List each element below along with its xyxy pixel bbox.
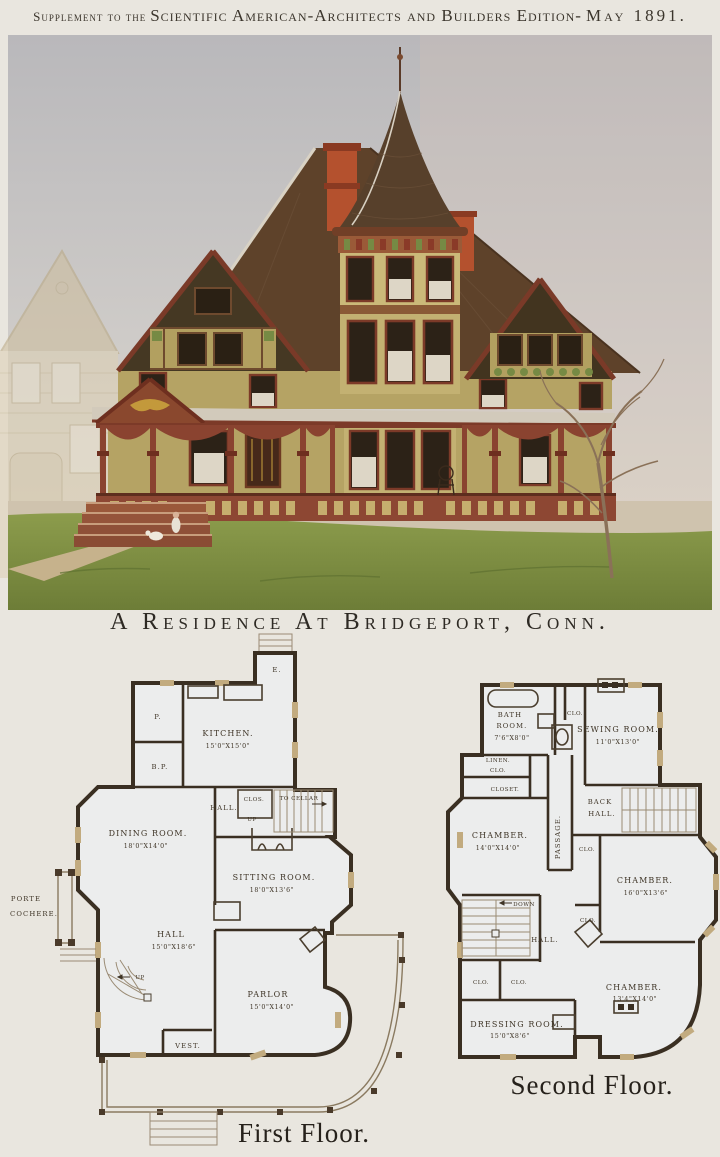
label-dining-dims: 18'0"X14'0" bbox=[124, 843, 168, 850]
label-bath-1: BATH bbox=[498, 711, 522, 719]
label-hall: HALL bbox=[157, 930, 185, 939]
scanned-plate-page: { "plate": { "header": { "prefix": "Supp… bbox=[0, 0, 720, 1157]
label-clo-c: CLO. bbox=[473, 980, 489, 986]
label-linen-2: CLO. bbox=[490, 768, 506, 774]
label-kitchen-dims: 15'0"X15'0" bbox=[206, 743, 250, 750]
label-sewing-dims: 11'0"X13'0" bbox=[596, 739, 640, 746]
house-illustration bbox=[0, 33, 720, 611]
label-chamber-e: CHAMBER. bbox=[617, 876, 673, 885]
first-floor-caption: First Floor. bbox=[184, 1118, 424, 1149]
label-dressing-room: DRESSING ROOM. bbox=[470, 1020, 563, 1029]
first-floor-plan: E. P. B.P. KITCHEN. 15'0"X15'0" HALL. CL… bbox=[10, 634, 405, 1145]
front-door bbox=[246, 433, 280, 487]
label-up-rear: UP bbox=[247, 817, 256, 823]
label-butlers-pantry: B.P. bbox=[152, 763, 169, 771]
label-back-hall-2: HALL. bbox=[588, 810, 616, 818]
label-down: DOWN bbox=[513, 902, 535, 908]
label-linen-1: LINEN. bbox=[486, 758, 510, 764]
label-parlor-dims: 15'0"X14'0" bbox=[250, 1004, 294, 1011]
label-hall-dims: 15'0"X18'6" bbox=[152, 944, 196, 951]
label-rear-hall: HALL. bbox=[210, 804, 238, 812]
label-clo-d: CLO. bbox=[511, 980, 527, 986]
label-porte-cochere-2: COCHERE. bbox=[10, 910, 58, 918]
label-sitting-dims: 18'0"X13'6" bbox=[250, 887, 294, 894]
label-to-cellar: TO CELLAR bbox=[280, 796, 319, 802]
label-vestibule: VEST. bbox=[174, 1042, 201, 1050]
label-kitchen: KITCHEN. bbox=[202, 729, 253, 738]
second-floor-plan: BATH ROOM. 7'6"X8'0" CLO. SEWING ROOM. 1… bbox=[448, 679, 719, 1060]
header-date: May 1891. bbox=[586, 6, 687, 25]
label-clo-top: CLO. bbox=[567, 711, 583, 717]
label-chamber-sw: CHAMBER. bbox=[472, 831, 528, 840]
label-closet-mid: CLOSET. bbox=[491, 787, 520, 793]
label-clo-a: CLO. bbox=[579, 847, 595, 853]
label-chamber-sw-dims: 14'0"X14'0" bbox=[476, 845, 520, 852]
rear-entry bbox=[259, 634, 292, 653]
label-chamber-e-dims: 16'0"X13'6" bbox=[624, 890, 668, 897]
label-passage: PASSAGE. bbox=[554, 815, 562, 859]
front-steps bbox=[74, 503, 212, 547]
label-chamber-se-dims: 13'4"X14'0" bbox=[613, 996, 657, 1003]
label-back-hall-1: BACK bbox=[588, 798, 613, 806]
label-chamber-se: CHAMBER. bbox=[606, 983, 662, 992]
label-sitting-room: SITTING ROOM. bbox=[233, 873, 316, 882]
label-parlor: PARLOR bbox=[248, 990, 289, 999]
label-closet: CLOS. bbox=[244, 797, 265, 803]
label-pantry: P. bbox=[154, 713, 162, 721]
label-up-main: UP bbox=[135, 975, 144, 981]
label-bath-dims: 7'6"X8'0" bbox=[494, 735, 529, 742]
header-prefix: Supplement to the bbox=[33, 9, 146, 24]
label-entry: E. bbox=[272, 666, 281, 674]
second-floor-caption: Second Floor. bbox=[472, 1070, 712, 1101]
label-bath-2: ROOM. bbox=[497, 722, 528, 730]
label-hall-2: HALL. bbox=[531, 936, 559, 944]
figure-child bbox=[172, 512, 181, 533]
label-sewing-room: SEWING ROOM. bbox=[577, 725, 659, 734]
label-dressing-dims: 15'0"X8'6" bbox=[490, 1033, 530, 1040]
header-main: Scientific American-Architects and Build… bbox=[150, 6, 582, 25]
label-dining-room: DINING ROOM. bbox=[109, 829, 188, 838]
plate-header: Supplement to the Scientific American-Ar… bbox=[0, 6, 720, 26]
label-porte-cochere-1: PORTE bbox=[11, 895, 41, 903]
label-clo-b: CLO. bbox=[580, 918, 596, 924]
